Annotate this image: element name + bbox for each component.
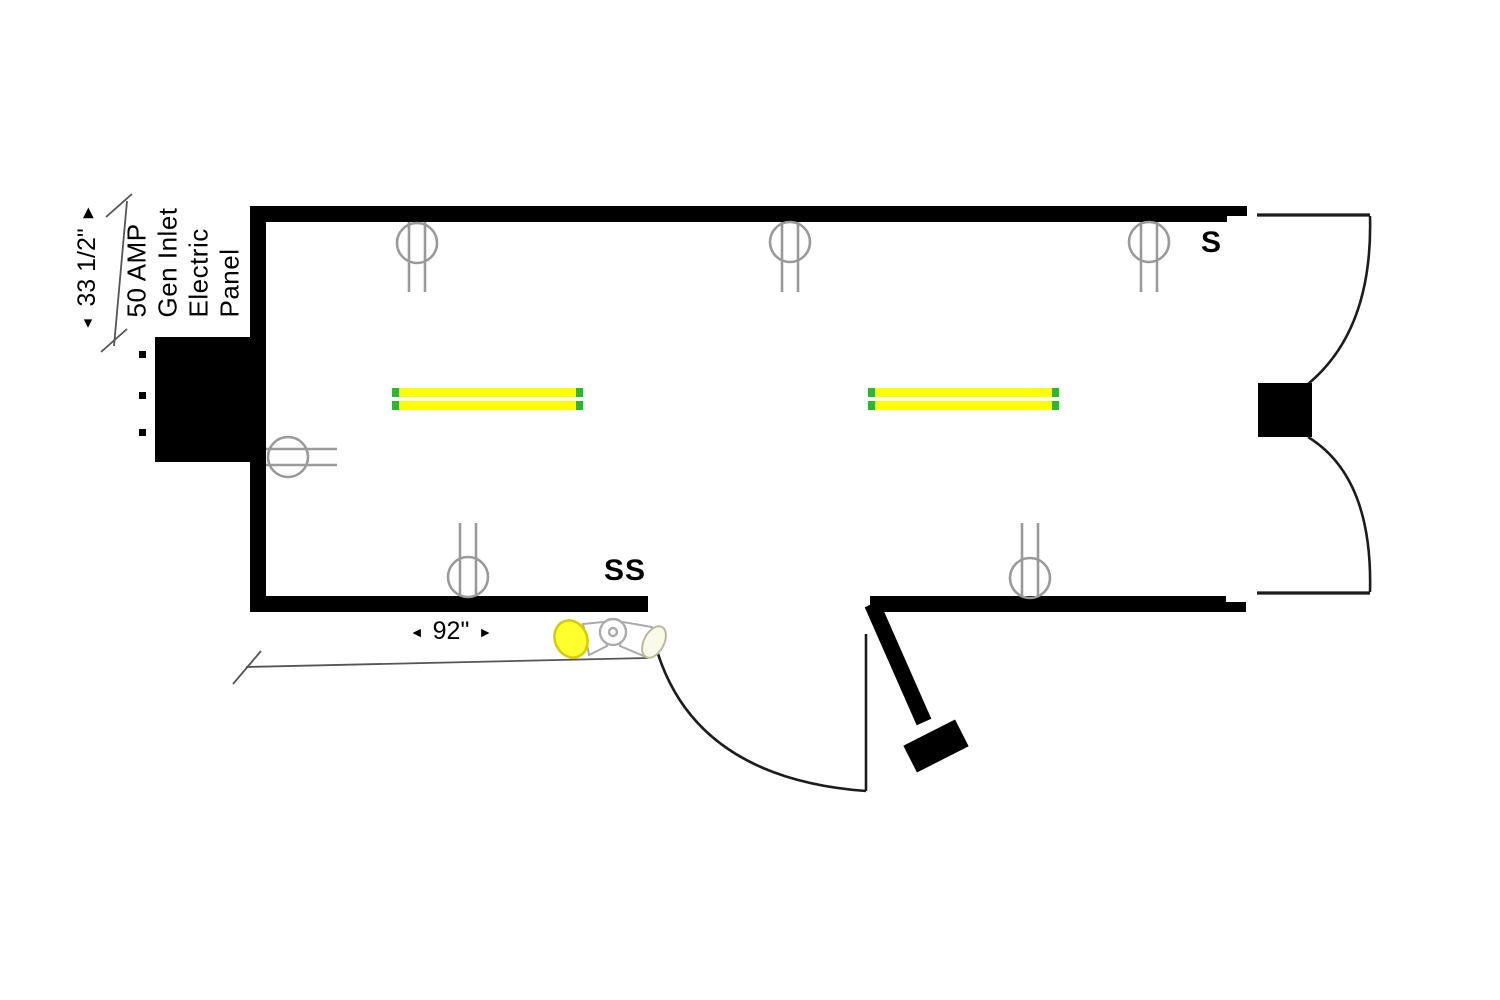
entry-door-bottom bbox=[655, 604, 969, 791]
bottom-wall-left bbox=[250, 596, 648, 612]
panel-label-line: Electric bbox=[184, 203, 215, 318]
door-distance-value: 92" bbox=[433, 617, 470, 646]
door-swing-arc bbox=[655, 644, 866, 791]
electric-panel-label: 50 AMP Gen Inlet Electric Panel bbox=[122, 203, 246, 318]
arrow-up-icon: ▶ bbox=[80, 207, 94, 218]
panel-label-line: Panel bbox=[215, 203, 246, 318]
door-leaf bbox=[872, 604, 924, 722]
wall-light-icon bbox=[1010, 523, 1050, 598]
bottom-wall-right bbox=[870, 596, 1246, 612]
switch-ss-label: SS bbox=[604, 556, 646, 586]
flood-light-icon bbox=[549, 615, 671, 663]
panel-mount-dots bbox=[139, 351, 146, 436]
door-post bbox=[1258, 383, 1312, 437]
panel-height-value: 33 1/2" bbox=[73, 228, 102, 306]
floor-plan-drawing bbox=[0, 0, 1500, 1000]
door-leaf-end bbox=[903, 719, 968, 772]
panel-label-line: 50 AMP bbox=[122, 203, 153, 318]
wall-light-icon bbox=[266, 437, 337, 477]
double-door-right bbox=[1257, 215, 1370, 593]
fluorescent-light-icon bbox=[392, 388, 583, 410]
panel-label-line: Gen Inlet bbox=[153, 203, 184, 318]
panel-height-dimension: ◄ 33 1/2" ▶ bbox=[68, 200, 106, 338]
arrow-right-icon: ► bbox=[478, 625, 492, 639]
arrow-down-icon: ◄ bbox=[80, 317, 94, 331]
wall-light-icon bbox=[1129, 222, 1169, 292]
fluorescent-light-icon bbox=[868, 388, 1059, 410]
wall-light-icon bbox=[770, 222, 810, 292]
door-distance-dimension: ◄ 92" ► bbox=[396, 617, 506, 646]
floor-plan-page: { "colors": { "wall": "#000000", "line_d… bbox=[0, 0, 1500, 1000]
arrow-left-icon: ◄ bbox=[410, 625, 424, 639]
wall-light-icon bbox=[397, 222, 437, 292]
electric-panel-block bbox=[155, 337, 254, 462]
switch-s-label: S bbox=[1201, 228, 1221, 258]
top-wall bbox=[250, 206, 1247, 222]
dimension-line-door-distance bbox=[233, 651, 648, 684]
wall-light-icon bbox=[448, 523, 488, 597]
